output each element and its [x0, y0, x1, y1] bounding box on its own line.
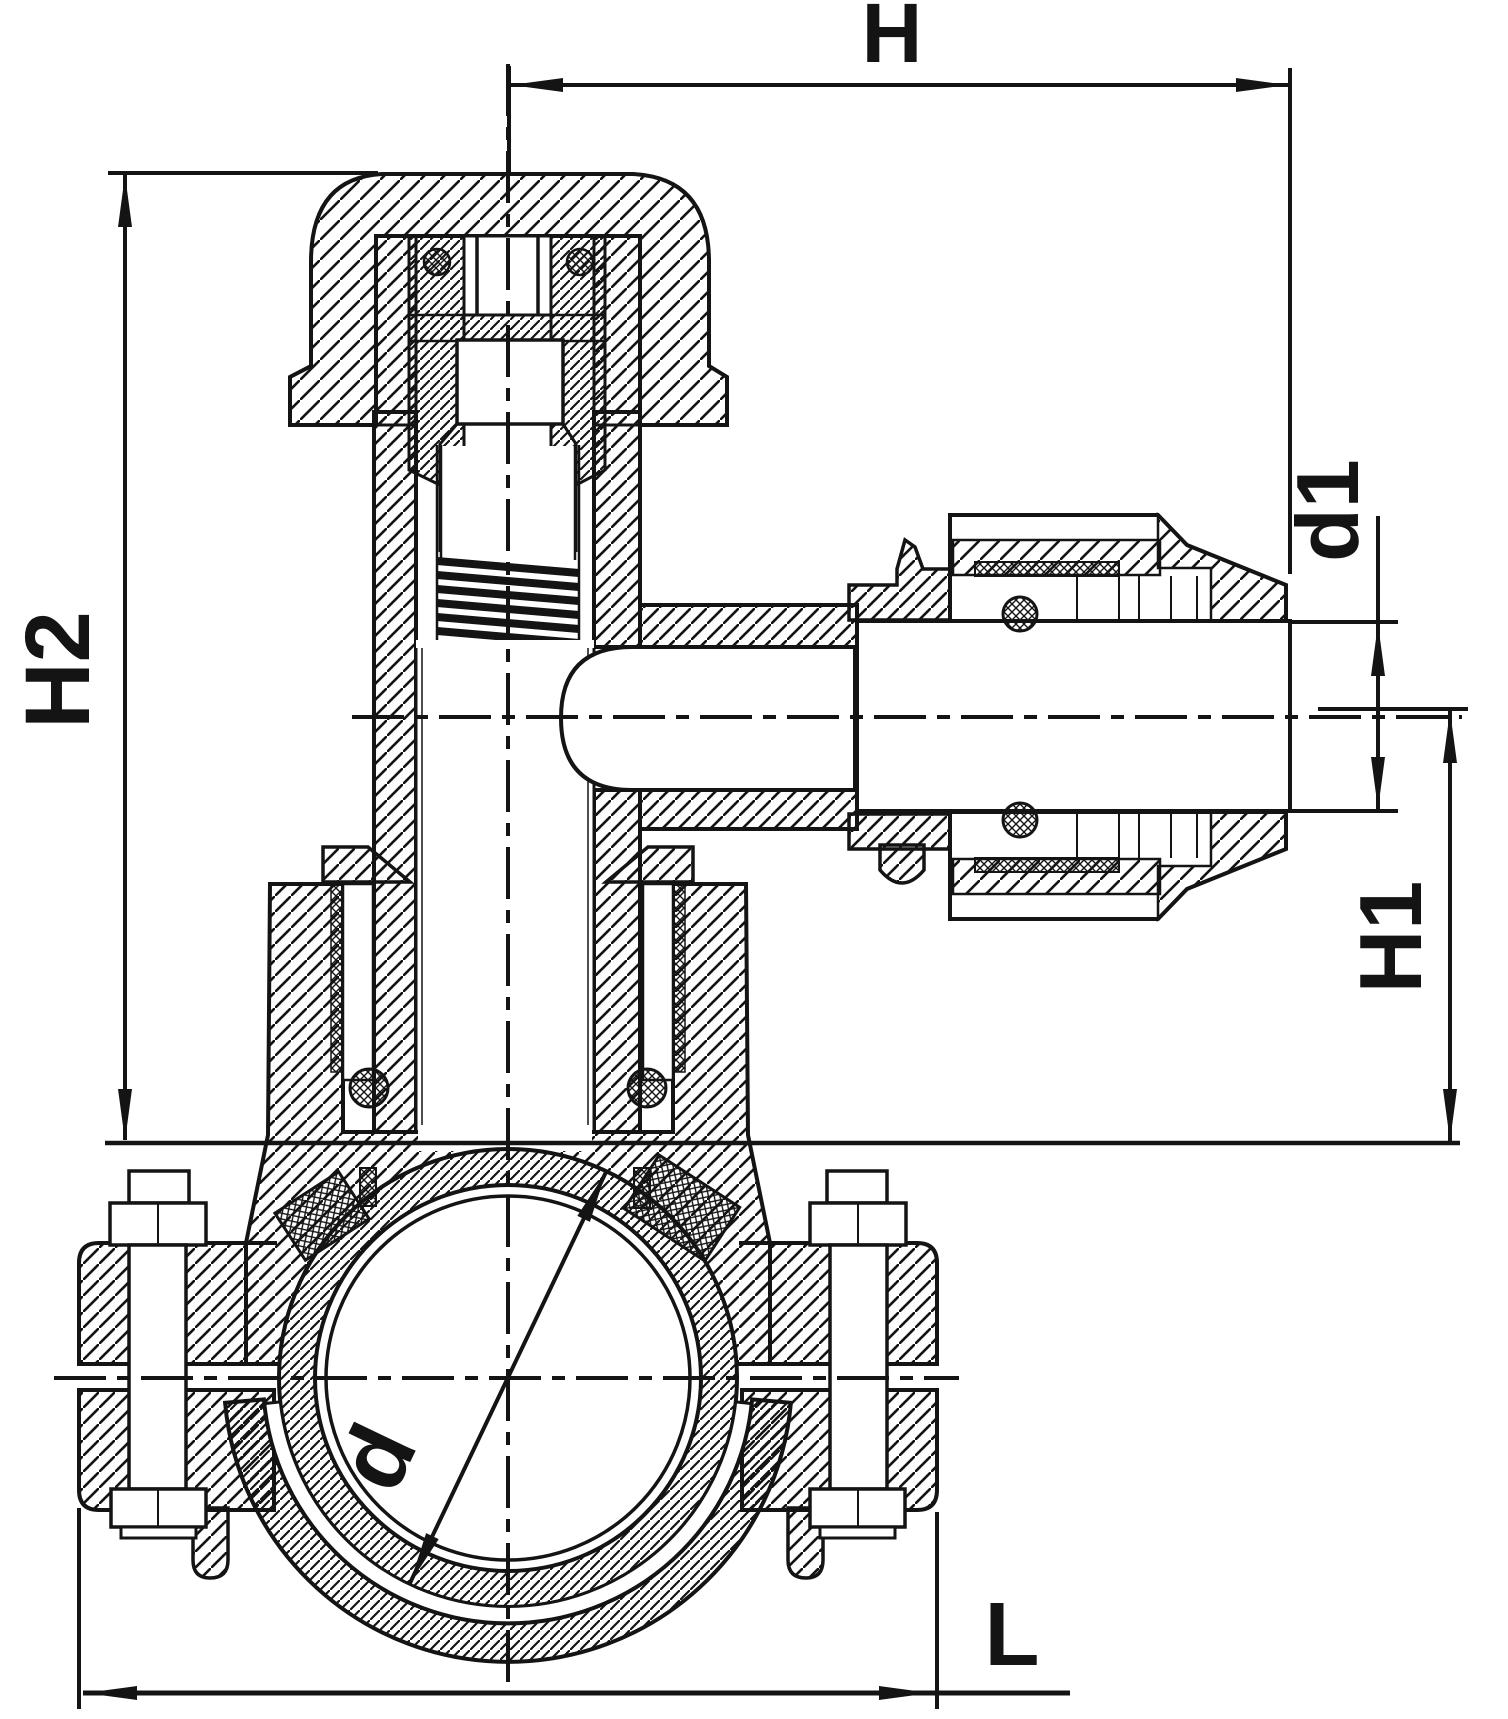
svg-text:d1: d1 — [1278, 459, 1377, 562]
svg-text:H1: H1 — [1341, 881, 1440, 994]
svg-text:L: L — [985, 1585, 1040, 1685]
svg-text:H2: H2 — [7, 611, 109, 729]
svg-text:H: H — [862, 0, 923, 80]
